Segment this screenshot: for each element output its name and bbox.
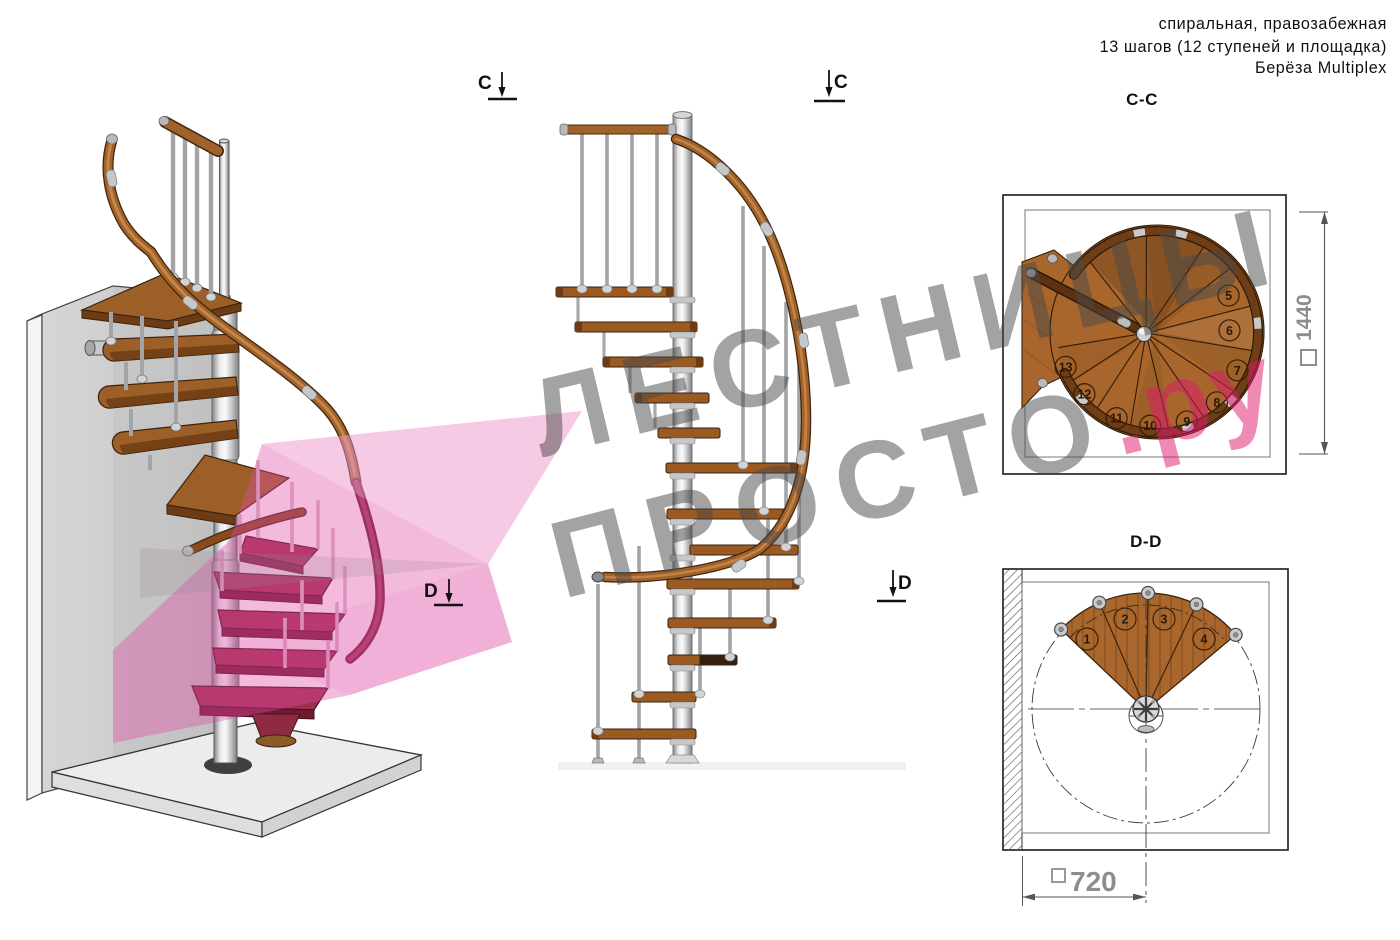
svg-text:2: 2: [1122, 613, 1129, 627]
svg-text:спиральная, правозабежная: спиральная, правозабежная: [1159, 15, 1387, 33]
svg-text:D: D: [424, 581, 438, 602]
svg-text:C: C: [834, 72, 848, 93]
svg-text:C: C: [478, 73, 492, 94]
svg-text:D-D: D-D: [1130, 532, 1162, 551]
svg-text:Берёза Multiplex: Берёза Multiplex: [1255, 59, 1387, 77]
svg-text:D: D: [898, 573, 912, 594]
svg-text:720: 720: [1070, 866, 1117, 897]
svg-text:C-C: C-C: [1126, 90, 1158, 109]
svg-text:1: 1: [1084, 633, 1091, 647]
svg-text:4: 4: [1201, 633, 1208, 647]
svg-text:3: 3: [1161, 613, 1168, 627]
svg-text:13 шагов (12 ступеней и площад: 13 шагов (12 ступеней и площадка): [1100, 38, 1387, 56]
svg-text:1440: 1440: [1293, 294, 1316, 341]
